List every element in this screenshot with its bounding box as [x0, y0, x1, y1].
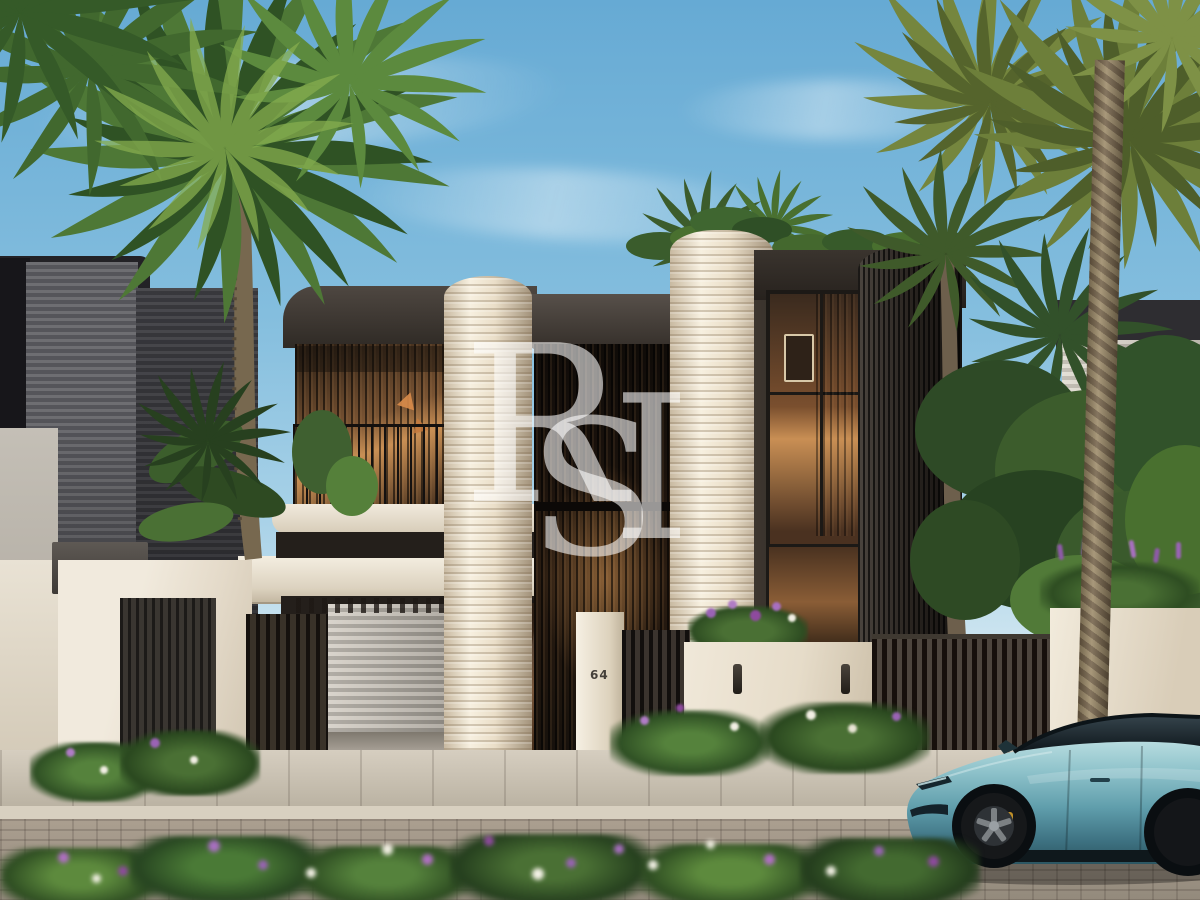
- flower-dot: [676, 704, 684, 712]
- flower-dot: [892, 712, 901, 721]
- flower-dot: [566, 858, 576, 868]
- wall-sconce: [841, 664, 850, 694]
- flower-dot: [100, 766, 108, 774]
- flower-dot: [788, 614, 796, 622]
- flower-dot: [382, 844, 393, 855]
- flower-dot: [484, 836, 494, 846]
- greenery: [610, 710, 770, 776]
- house-number: 64: [590, 668, 609, 682]
- flower-dot: [826, 866, 836, 876]
- architectural-rendering: 64: [0, 0, 1200, 900]
- bush-left: [30, 722, 260, 806]
- greenery: [120, 730, 260, 796]
- flower-dot: [874, 846, 884, 856]
- flower-dot: [750, 610, 761, 621]
- flower-dot: [772, 602, 781, 611]
- flower-spike: [1176, 542, 1181, 559]
- flower-dot: [730, 722, 739, 731]
- foreground-flowerbed: [0, 822, 1010, 900]
- flower-dot: [706, 608, 716, 618]
- flower-dot: [306, 868, 316, 878]
- flower-dot: [422, 854, 433, 865]
- flower-dot: [258, 860, 268, 870]
- flower-dot: [706, 840, 715, 849]
- flower-dot: [648, 860, 658, 870]
- flower-dot: [118, 866, 128, 876]
- flower-dot: [728, 600, 737, 609]
- flower-spike: [1128, 540, 1136, 559]
- flower-dot: [928, 856, 939, 867]
- flower-dot: [806, 710, 816, 720]
- flower-dot: [66, 748, 75, 757]
- flower-dot: [190, 756, 198, 764]
- flower-spike: [1153, 548, 1160, 564]
- flower-dot: [58, 852, 69, 863]
- greenery: [640, 844, 820, 900]
- wall-sconce: [733, 664, 742, 694]
- flower-spike: [1057, 544, 1064, 561]
- flower-dot: [848, 724, 857, 733]
- flower-dot: [92, 874, 101, 883]
- greenery: [130, 836, 320, 900]
- door-handle: [1090, 778, 1110, 782]
- bush-entrance: [610, 692, 930, 784]
- flower-dot: [208, 840, 220, 852]
- flower-dot: [640, 716, 649, 725]
- lavender-flowers: [1036, 538, 1200, 618]
- flower-dot: [150, 738, 160, 748]
- greenery: [1040, 562, 1200, 614]
- flower-dot: [532, 868, 544, 880]
- flower-dot: [764, 854, 775, 865]
- flower-dot: [614, 844, 624, 854]
